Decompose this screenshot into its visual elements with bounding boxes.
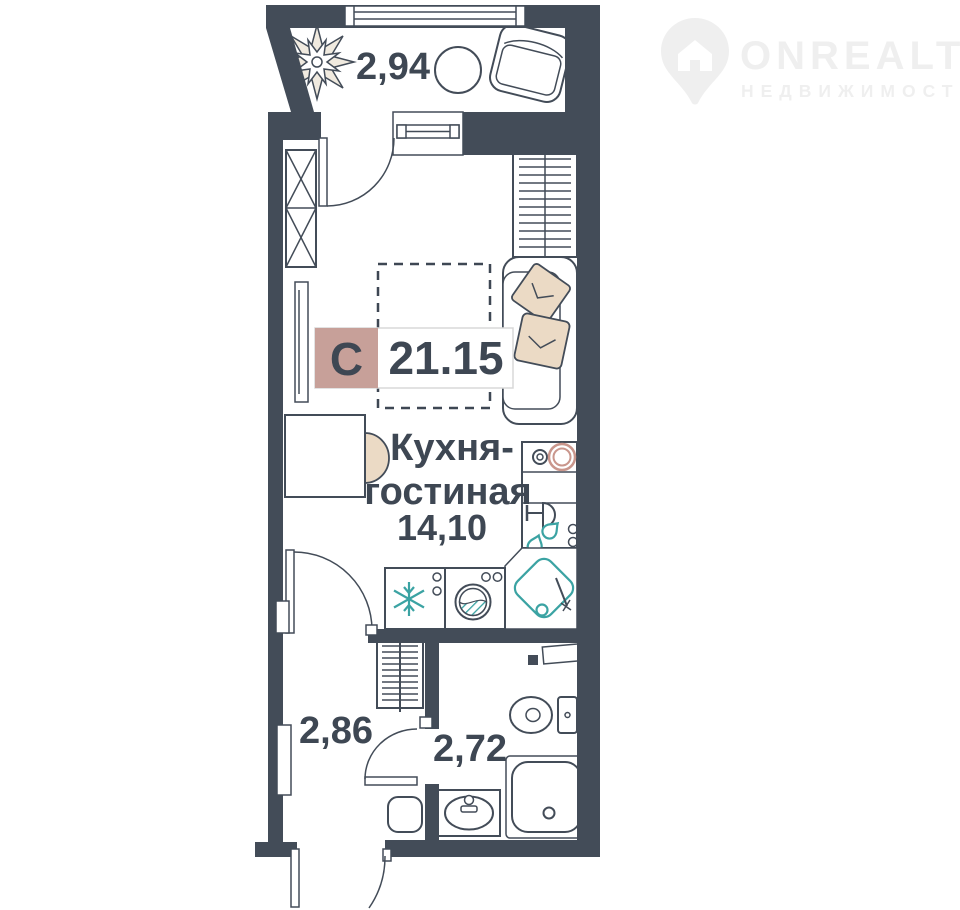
total-area-value: 21.15 [388, 332, 503, 384]
watermark-tagline: НЕДВИЖИМОСТЬ [741, 81, 960, 101]
fridge [385, 568, 445, 629]
room-name-line1: Кухня- [390, 427, 514, 469]
sofa [503, 257, 577, 424]
towel-ladder [377, 638, 423, 712]
hallway-stool [388, 797, 422, 832]
entry-door [291, 849, 391, 908]
armchair [487, 22, 573, 105]
hallway-area-label: 2,86 [299, 710, 373, 752]
onrealt-watermark: ONREALT НЕДВИЖИМОСТЬ [661, 18, 960, 105]
balcony-table [435, 47, 481, 93]
sofa-pillow [514, 313, 571, 370]
hanging-closet [513, 144, 577, 263]
wardrobe [286, 150, 316, 267]
room-area-label: 14,10 [397, 507, 487, 548]
toilet [510, 697, 577, 733]
room-door [286, 550, 377, 635]
shower-tray [506, 756, 587, 838]
room-window-block [393, 112, 463, 155]
tv-unit [295, 282, 308, 402]
watermark-brand: ONREALT [740, 34, 960, 78]
bathroom-sink [438, 790, 500, 836]
dining-table [285, 415, 365, 497]
washing-machine [445, 568, 505, 629]
area-badge: С 21.15 [315, 328, 513, 388]
map-pin-house-icon [661, 18, 729, 105]
balcony-area-label: 2,94 [356, 46, 430, 88]
floorplan-page: 2,94 Кухня- гостиная 14,10 2,86 2,72 С 2… [0, 0, 960, 910]
apartment-type-letter: С [330, 333, 363, 385]
balcony-door [319, 138, 394, 206]
floorplan-svg: 2,94 Кухня- гостиная 14,10 2,86 2,72 С 2… [0, 0, 960, 910]
bathroom-door [365, 717, 432, 785]
balcony-window [345, 6, 525, 26]
bathroom-area-label: 2,72 [433, 728, 507, 770]
vent-shaft [528, 655, 538, 665]
